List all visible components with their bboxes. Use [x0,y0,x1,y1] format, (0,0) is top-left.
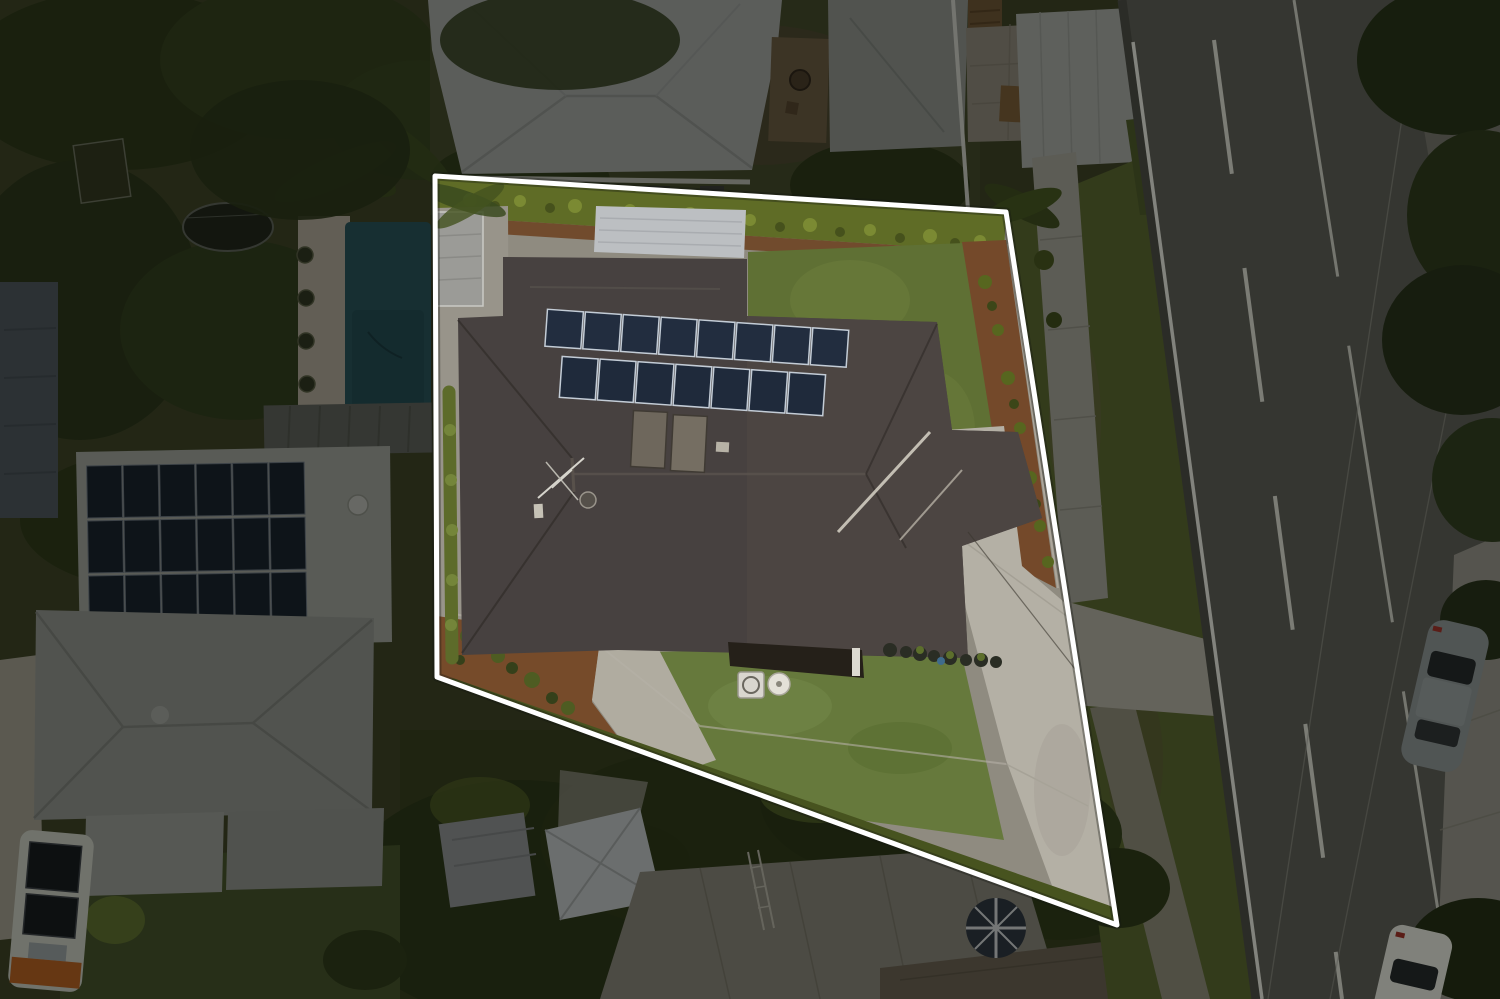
hedge-foliage-dot [444,424,456,436]
aerial-photo-stage [0,0,1500,999]
hedge-foliage-dot [445,474,457,486]
solar-hot-water-panel [670,415,707,473]
solar-panel [559,356,598,399]
hedge-foliage-dot [923,229,937,243]
blue-bucket [937,657,945,665]
roof-hatch [716,442,730,453]
solar-panel [635,362,674,405]
hedge-foliage-dot [744,214,756,226]
plant-pots-dot [960,654,972,666]
bed-shrubs-dark-dot [1009,399,1019,409]
solar-panel [583,312,621,351]
roof-whirlybird [580,492,596,508]
solar-panel [659,317,697,356]
bed-shrubs-dot [978,275,992,289]
garden-shrubs-dark-dot [506,662,518,674]
hedge-foliage-dot [514,195,526,207]
hedge-foliage-dot [568,199,582,213]
hedge-foliage-dot [446,574,458,586]
bed-shrubs-dot [1034,520,1046,532]
garden-shrubs-dot [524,672,540,688]
solar-panel [673,364,712,407]
plant-pots-dot [990,656,1002,668]
solar-panel [810,328,848,367]
pot-plants-dot [946,651,954,659]
driveway-stain [1034,724,1090,856]
roof-vent [534,504,544,518]
hedge-foliage-dot [446,524,458,536]
hedge-shadow-dot [895,233,905,243]
hedge-shadow-dot [545,203,555,213]
hedge-shadow-dot [835,227,845,237]
ac-unit [738,672,764,698]
solar-hot-water-panel [631,411,668,469]
solar-panel [749,370,788,413]
hedge-foliage-dot [864,224,876,236]
garden-shrubs-dot [561,701,575,715]
solar-panel [597,359,636,402]
aerial-property-photo [0,0,1500,999]
garage-post [852,648,860,676]
solar-panel [734,323,772,362]
plant-pots-dot [900,646,912,658]
plant-pots-dot [883,643,897,657]
hedge-shadow-dot [775,222,785,232]
bed-shrubs-dot [1001,371,1015,385]
pot-plants-dot [916,646,924,654]
pot-plants-dot [977,653,985,661]
solar-panel [621,315,659,354]
solar-panel [545,309,583,348]
bed-shrubs-dark-dot [987,301,997,311]
lawn-shade [848,722,952,774]
dish-feed [776,681,782,687]
hedge-foliage-dot [445,619,457,631]
garden-shrubs-dark-dot [546,692,558,704]
solar-panel [711,367,750,410]
bed-shrubs-dot [992,324,1004,336]
solar-panel [697,320,735,359]
hedge-foliage-dot [803,218,817,232]
solar-panel [772,325,810,364]
solar-panel [787,372,826,415]
bed-shrubs-dot [1042,556,1054,568]
